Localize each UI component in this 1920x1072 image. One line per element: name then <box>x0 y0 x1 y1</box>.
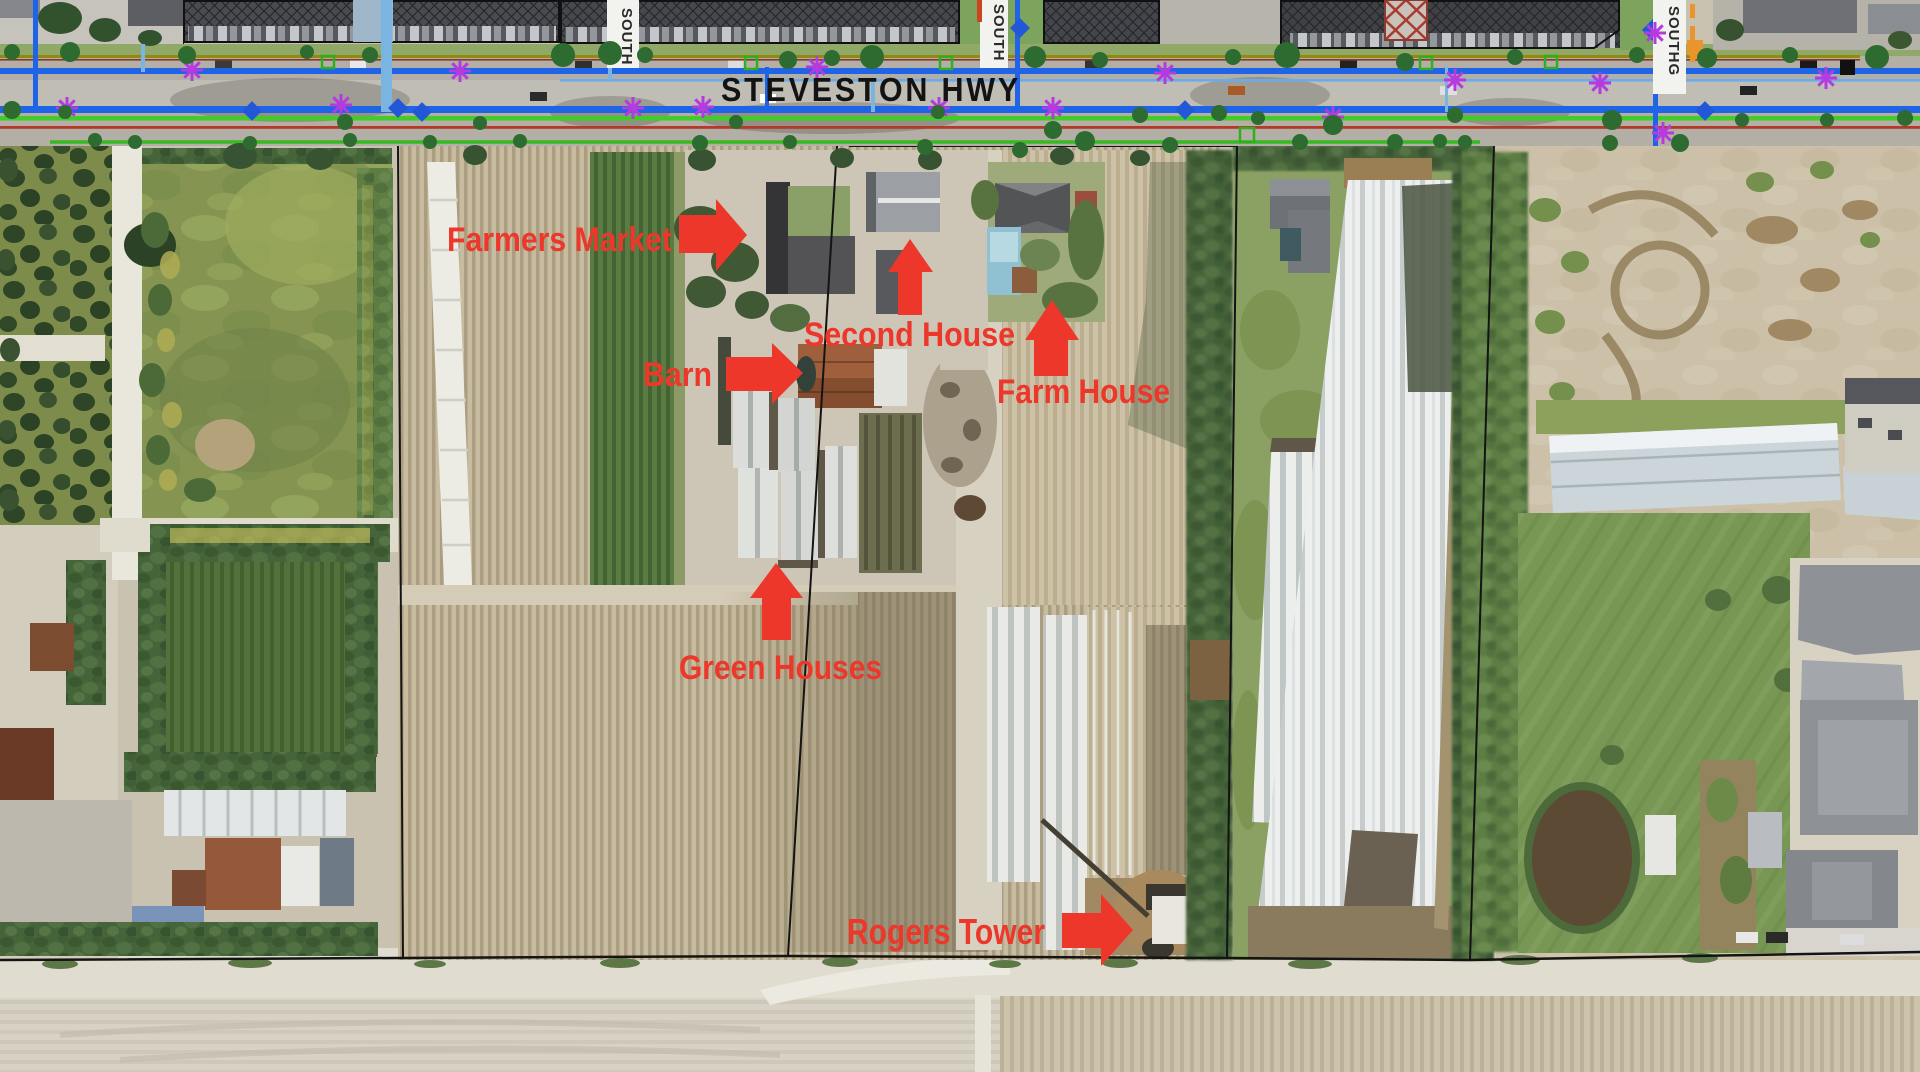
svg-text:Farmers Market: Farmers Market <box>447 221 672 259</box>
svg-text:STEVESTON HWY: STEVESTON HWY <box>721 71 1021 108</box>
svg-text:Barn: Barn <box>643 356 712 394</box>
svg-text:SOUTH: SOUTH <box>618 8 635 66</box>
svg-text:SOUTH: SOUTH <box>990 4 1007 62</box>
svg-text:Green Houses: Green Houses <box>679 649 882 687</box>
svg-text:Second House: Second House <box>804 316 1015 354</box>
svg-text:Rogers Tower: Rogers Tower <box>847 911 1045 952</box>
svg-text:SOUTHG: SOUTHG <box>1665 6 1682 76</box>
svg-text:Farm House: Farm House <box>997 373 1170 411</box>
